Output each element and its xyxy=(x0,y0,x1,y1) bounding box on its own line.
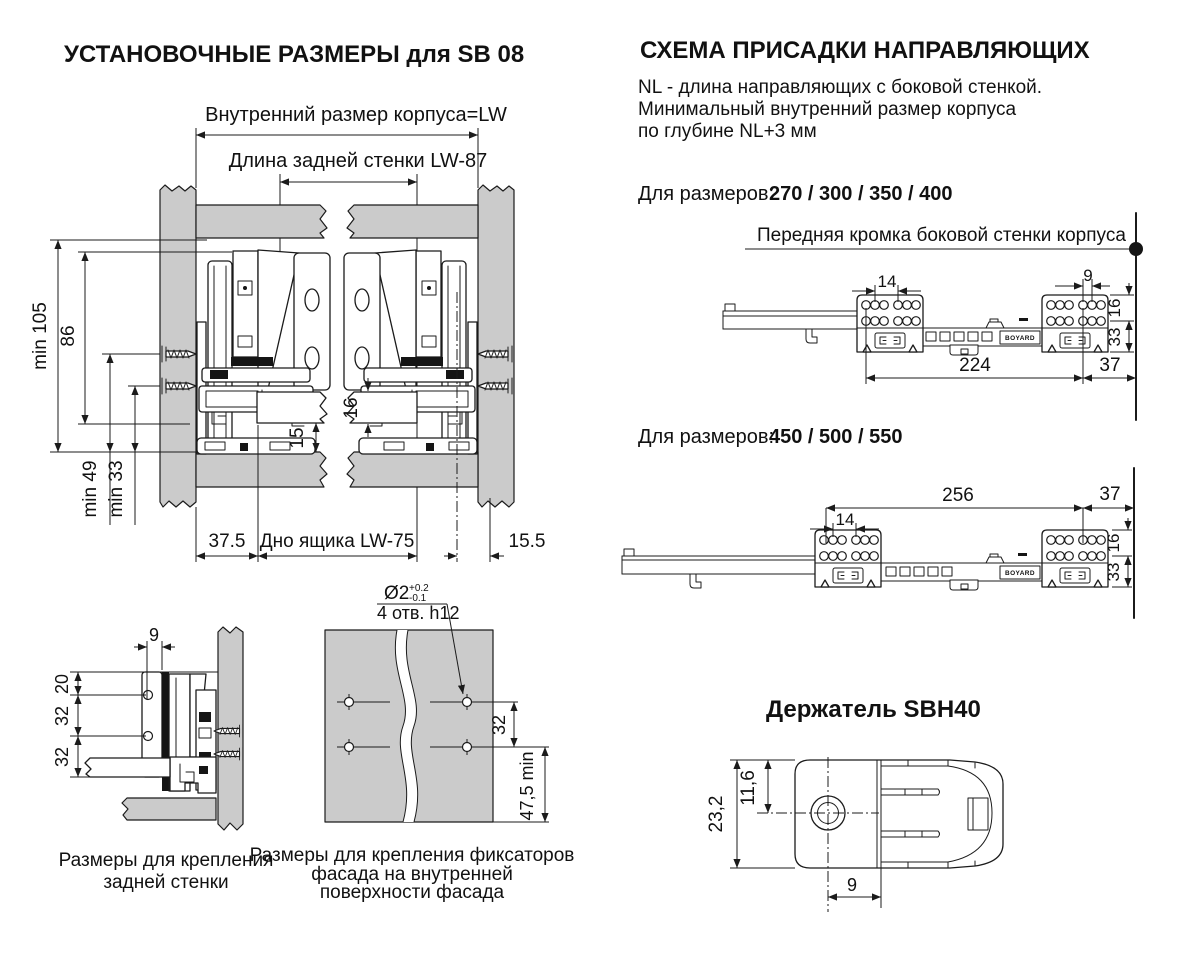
rear-dim-32a-label: 32 xyxy=(52,706,72,726)
bottom-panel-left xyxy=(196,452,327,487)
reference-dot xyxy=(1129,242,1143,256)
fixing-hole xyxy=(345,743,354,752)
d1-dim-14-label: 14 xyxy=(878,272,897,291)
brand-label: BOYARD xyxy=(1005,570,1035,577)
dim-16-label: 16 xyxy=(341,397,362,418)
sizes-label-1: Для размеров: xyxy=(638,183,774,205)
d1-dim-9-label: 9 xyxy=(1083,266,1092,285)
holder-dim-11-6-label: 11,6 xyxy=(738,770,759,806)
back-wall-fixing-diagram: 9 20 32 32 Размеры для крепления задней … xyxy=(52,625,273,893)
d2-dim-33-label: 33 xyxy=(1104,563,1123,582)
right-title: СХЕМА ПРИСАДКИ НАПРАВЛЯЮЩИХ xyxy=(640,37,1090,64)
sizes-label-2: Для размеров: xyxy=(638,426,774,448)
drawing-canvas: УСТАНОВОЧНЫЕ РАЗМЕРЫ для SB 08 Внутренни… xyxy=(0,0,1200,966)
note-line3: по глубине NL+3 мм xyxy=(638,121,817,142)
holder-dim-9-label: 9 xyxy=(847,875,857,895)
lw-dimension-label: Внутренний размер корпуса=LW xyxy=(205,104,507,126)
fixing-hole xyxy=(463,743,472,752)
d1-dim-37-label: 37 xyxy=(1099,355,1120,376)
drawer-bottom-dim-label: Дно ящика LW-75 xyxy=(260,531,415,552)
rail-hole-block xyxy=(1042,530,1108,587)
front-edge-label: Передняя кромка боковой стенки корпуса xyxy=(757,225,1126,246)
cabinet-side-panel-right xyxy=(478,185,514,507)
d1-dim-33-label: 33 xyxy=(1105,328,1124,347)
facade-caption-line3: поверхности фасада xyxy=(320,882,505,903)
fixing-hole xyxy=(345,698,354,707)
dim-min33-label: min 33 xyxy=(106,460,127,517)
facade-dim-47-5-label: 47,5 min xyxy=(517,751,537,820)
dim-15-5-label: 15.5 xyxy=(509,531,546,552)
rail-hole-block xyxy=(1042,295,1108,352)
rail-hole-block xyxy=(815,530,881,587)
rear-caption-line1: Размеры для крепления xyxy=(59,850,274,871)
fixing-hole xyxy=(463,698,472,707)
drawer-back-wall-right xyxy=(347,205,478,238)
sizes-values-1: 270 / 300 / 350 / 400 xyxy=(769,183,953,205)
rail-drilling-section: СХЕМА ПРИСАДКИ НАПРАВЛЯЮЩИХ NL - длина н… xyxy=(622,37,1143,912)
rear-dim-32b-label: 32 xyxy=(52,747,72,767)
facade-caption-line1: Размеры для крепления фиксаторов xyxy=(250,845,575,866)
holder-title: Держатель SBH40 xyxy=(766,696,981,723)
rear-dim-9-label: 9 xyxy=(149,625,159,645)
drawer-bottom-edge xyxy=(85,758,170,777)
drawer-back-wall-left xyxy=(196,205,327,238)
technical-drawing-page: УСТАНОВОЧНЫЕ РАЗМЕРЫ для SB 08 Внутренни… xyxy=(0,0,1200,966)
bottom-panel-right xyxy=(347,452,478,487)
rear-caption-line2: задней стенки xyxy=(103,872,228,893)
d2-dim-14-label: 14 xyxy=(836,510,855,529)
dim-86-label: 86 xyxy=(58,325,79,346)
facade-dim-32-label: 32 xyxy=(489,715,509,735)
d2-dim-256-label: 256 xyxy=(942,485,974,506)
note-line2: Минимальный внутренний размер корпуса xyxy=(638,99,1016,120)
left-title: УСТАНОВОЧНЫЕ РАЗМЕРЫ для SB 08 xyxy=(64,41,524,68)
holder-sbh40-diagram: Держатель SBH40 23,2 11,6 9 xyxy=(706,696,1003,912)
rail-diagram-270-400: Для размеров: 270 / 300 / 350 / 400 Пере… xyxy=(638,183,1143,420)
back-wall-length-label: Длина задней стенки LW-87 xyxy=(229,150,488,172)
d1-dim-224-label: 224 xyxy=(959,355,991,376)
drawer-bottom-left xyxy=(257,392,327,423)
d2-dim-37-label: 37 xyxy=(1099,484,1120,505)
brand-label: BOYARD xyxy=(1005,335,1035,342)
facade-fixing-diagram: Ø2 +0.2 -0.1 4 отв. h12 32 47,5 min Разм… xyxy=(250,583,575,903)
sizes-values-2: 450 / 500 / 550 xyxy=(769,426,902,448)
cabinet-side-panel-left xyxy=(160,185,196,507)
rail-diagram-450-550: Для размеров: 450 / 500 / 550 BOYARD xyxy=(622,426,1134,618)
rail-hole-block xyxy=(857,295,923,352)
d2-dim-16-label: 16 xyxy=(1104,534,1123,553)
dim-15-label: 15 xyxy=(287,427,308,448)
note-line1: NL - длина направляющих с боковой стенко… xyxy=(638,77,1042,98)
rear-dim-20-label: 20 xyxy=(52,674,72,694)
d1-dim-16-label: 16 xyxy=(1105,299,1124,318)
holder-dim-23-2-label: 23,2 xyxy=(706,796,727,833)
dim-min49-label: min 49 xyxy=(80,460,101,517)
dim-37-5-label: 37.5 xyxy=(209,531,246,552)
install-dimensions-section: УСТАНОВОЧНЫЕ РАЗМЕРЫ для SB 08 Внутренни… xyxy=(30,41,545,562)
cabinet-bottom-edge xyxy=(122,798,216,820)
hole-diameter-label: Ø2 xyxy=(384,583,409,604)
dim-min105-label: min 105 xyxy=(30,302,51,370)
